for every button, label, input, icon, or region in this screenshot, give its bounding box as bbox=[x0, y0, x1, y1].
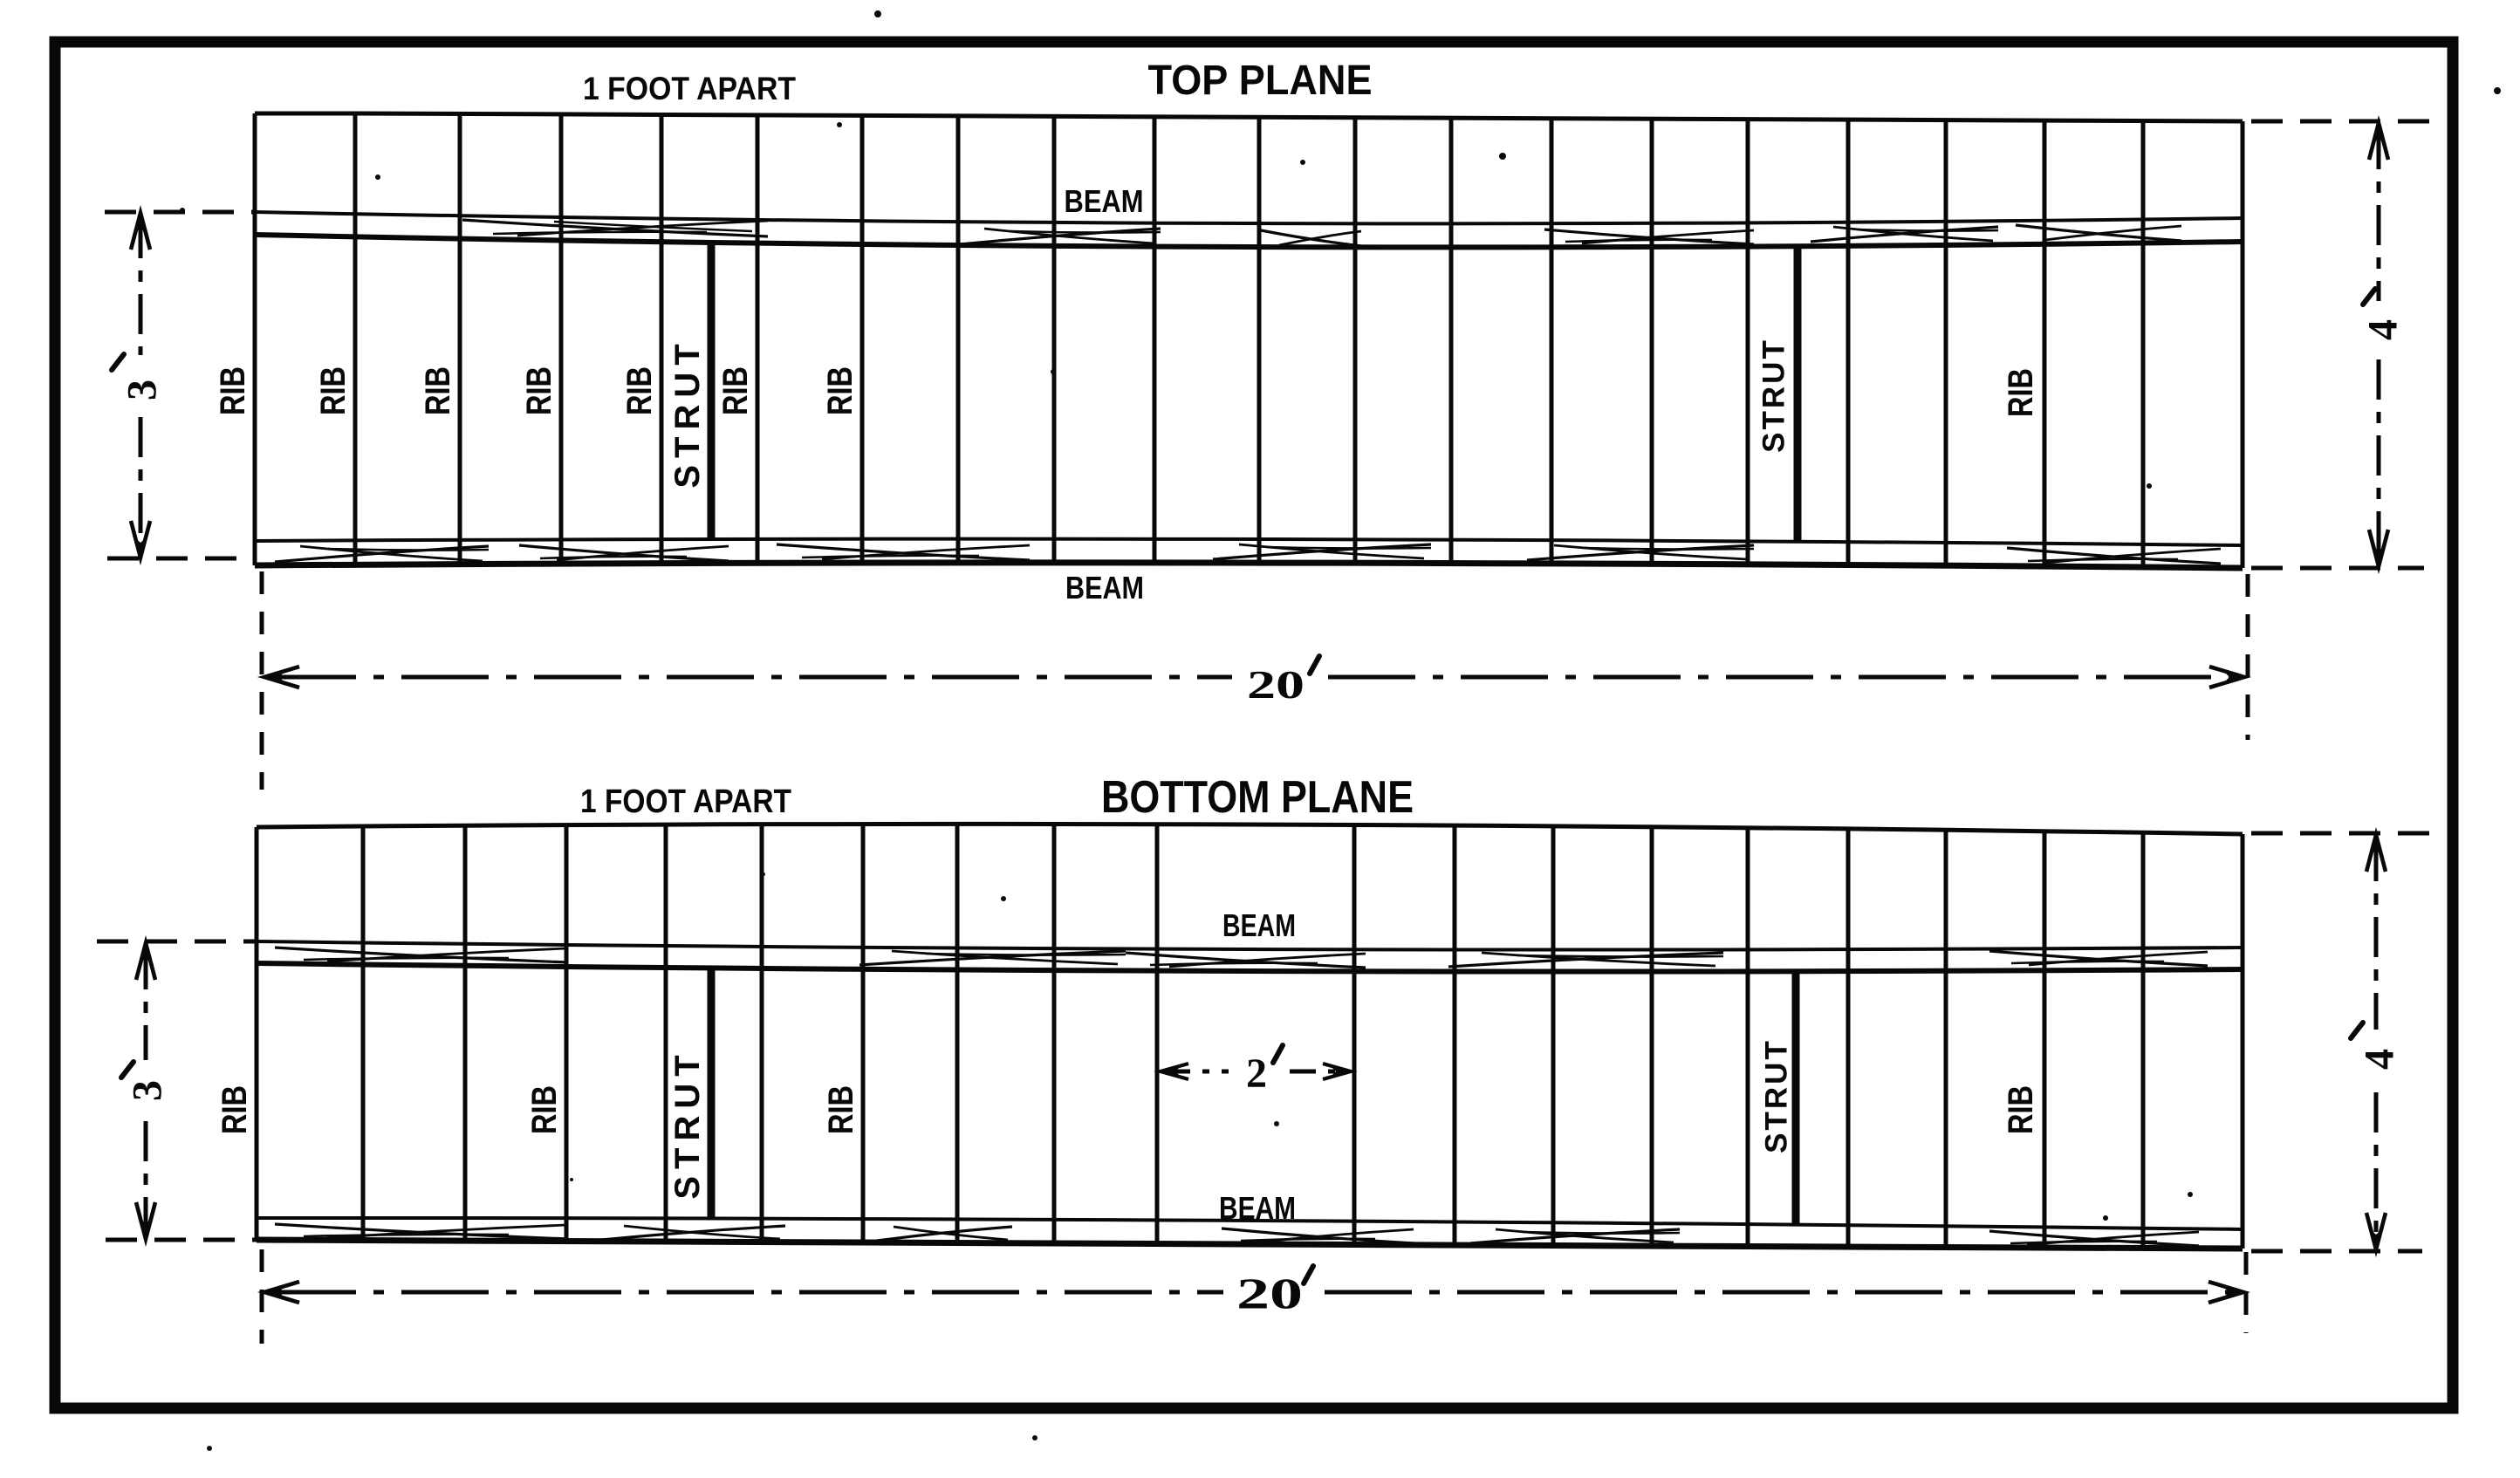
svg-text:BEAM: BEAM bbox=[1222, 907, 1296, 943]
svg-text:20: 20 bbox=[1247, 662, 1305, 707]
svg-text:STRUT: STRUT bbox=[668, 337, 707, 488]
svg-text:20: 20 bbox=[1236, 1269, 1303, 1317]
svg-text:RIB: RIB bbox=[2002, 1085, 2040, 1134]
svg-text:RIB: RIB bbox=[214, 366, 252, 415]
svg-text:1 FOOT APART: 1 FOOT APART bbox=[580, 783, 791, 820]
svg-text:1 FOOT APART: 1 FOOT APART bbox=[583, 71, 796, 106]
svg-text:STRUT: STRUT bbox=[1760, 1038, 1794, 1153]
svg-text:RIB: RIB bbox=[716, 366, 755, 415]
svg-text:3: 3 bbox=[125, 1080, 171, 1101]
svg-text:4: 4 bbox=[2360, 319, 2407, 340]
svg-text:RIB: RIB bbox=[419, 366, 457, 415]
svg-text:BEAM: BEAM bbox=[1219, 1190, 1296, 1226]
svg-text:BOTTOM PLANE: BOTTOM PLANE bbox=[1101, 772, 1414, 823]
svg-text:RIB: RIB bbox=[822, 1085, 860, 1134]
svg-text:RIB: RIB bbox=[525, 1085, 564, 1134]
svg-text:3: 3 bbox=[120, 380, 166, 400]
svg-text:RIB: RIB bbox=[314, 366, 353, 415]
svg-text:4: 4 bbox=[2357, 1049, 2403, 1070]
svg-text:BEAM: BEAM bbox=[1065, 183, 1144, 219]
svg-text:TOP PLANE: TOP PLANE bbox=[1148, 58, 1373, 104]
svg-text:RIB: RIB bbox=[620, 366, 659, 415]
svg-text:STRUT: STRUT bbox=[1757, 338, 1791, 453]
svg-text:BEAM: BEAM bbox=[1065, 570, 1144, 606]
svg-text:RIB: RIB bbox=[520, 366, 558, 415]
svg-text:RIB: RIB bbox=[216, 1085, 254, 1134]
svg-text:2: 2 bbox=[1246, 1050, 1267, 1097]
svg-text:STRUT: STRUT bbox=[668, 1048, 707, 1199]
svg-text:RIB: RIB bbox=[2002, 368, 2040, 417]
svg-text:RIB: RIB bbox=[821, 366, 859, 415]
